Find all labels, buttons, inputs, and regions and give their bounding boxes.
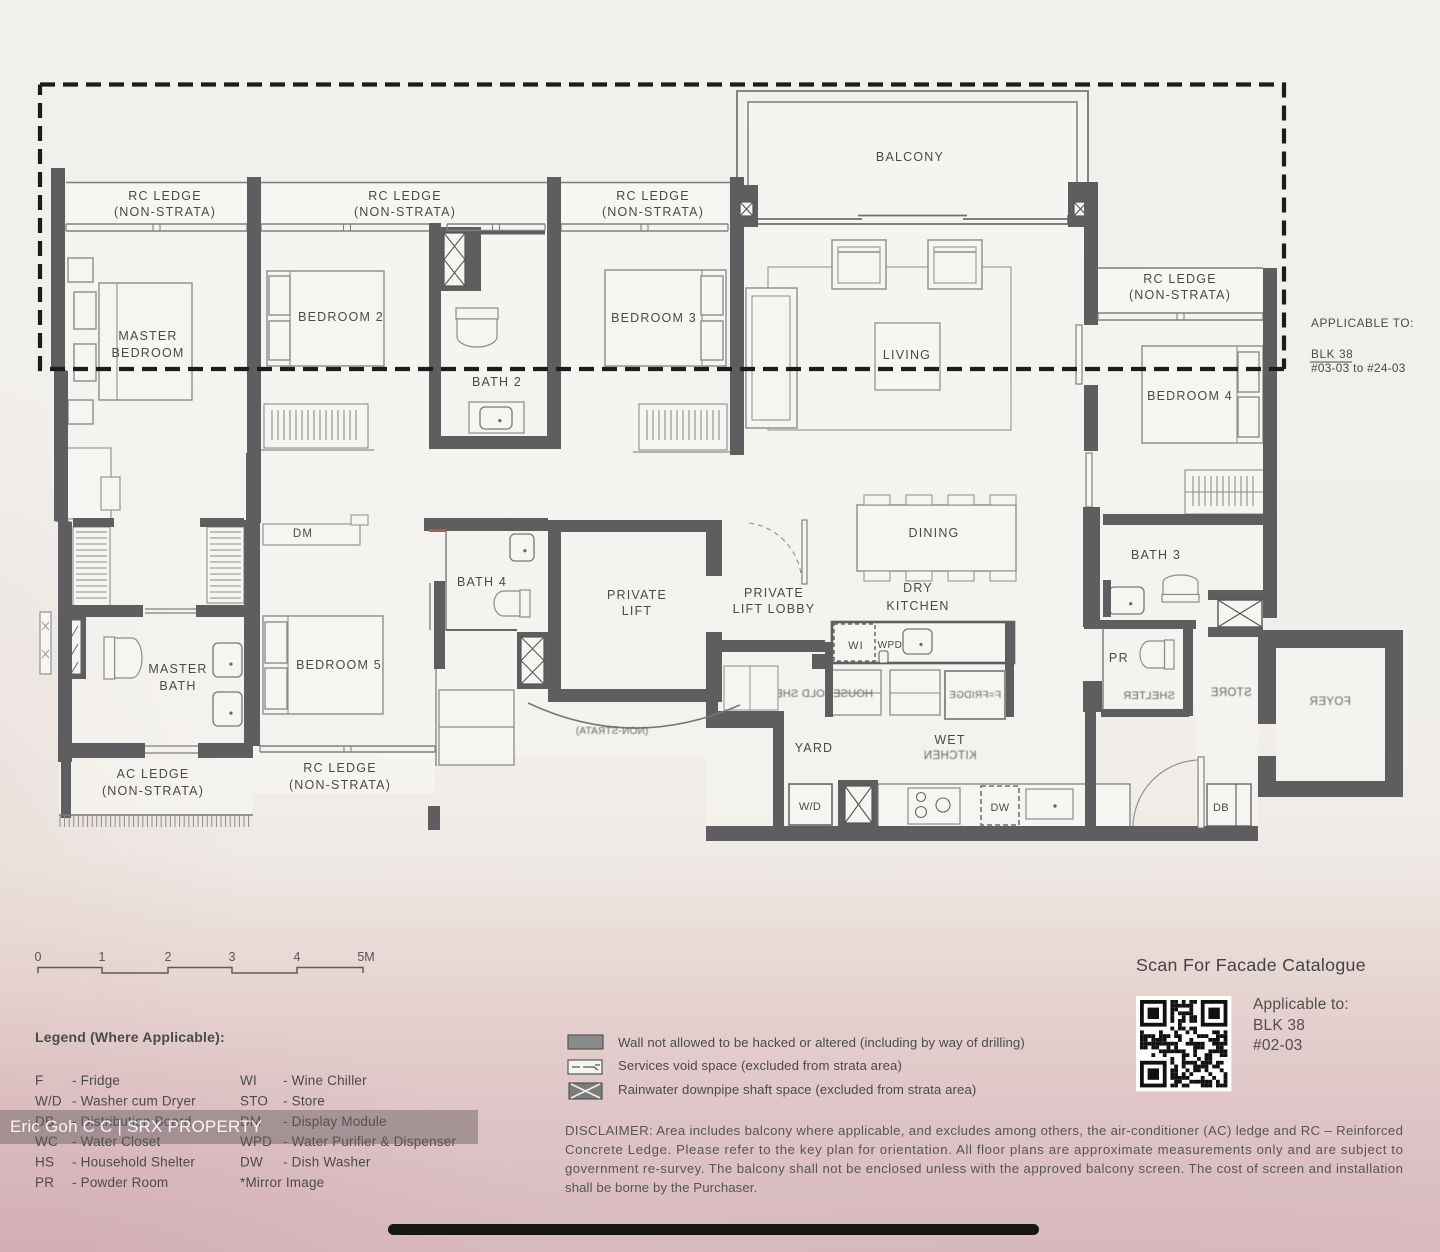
svg-text:Services void space (excluded: Services void space (excluded from strat… [618, 1058, 902, 1073]
svg-text:BALCONY: BALCONY [876, 150, 944, 164]
svg-text:HS: HS [35, 1155, 54, 1170]
svg-text:Legend (Where Applicable):: Legend (Where Applicable): [35, 1029, 225, 1045]
svg-text:LIFT LOBBY: LIFT LOBBY [733, 602, 816, 616]
svg-text:Concrete Ledge. Please refer t: Concrete Ledge. Please refer to the key … [565, 1142, 1403, 1157]
svg-text:WI: WI [240, 1073, 257, 1088]
svg-text:AC LEDGE: AC LEDGE [117, 767, 190, 781]
svg-text:- Washer cum Dryer: - Washer cum Dryer [72, 1093, 196, 1108]
svg-text:PR: PR [1109, 651, 1129, 665]
svg-text:WET: WET [934, 733, 965, 747]
svg-text:3: 3 [229, 950, 236, 964]
svg-text:BLK 38: BLK 38 [1253, 1017, 1305, 1034]
svg-text:(NON-STRATA): (NON-STRATA) [354, 205, 456, 219]
svg-text:RC LEDGE: RC LEDGE [128, 189, 202, 203]
svg-text:(NON-STRATA): (NON-STRATA) [1129, 288, 1231, 302]
svg-text:DW: DW [240, 1155, 263, 1170]
svg-text:(NON-STRATA): (NON-STRATA) [289, 778, 391, 792]
svg-text:FOYER: FOYER [1309, 696, 1351, 708]
svg-text:4: 4 [294, 950, 301, 964]
svg-text:- Store: - Store [283, 1093, 325, 1108]
svg-text:YARD: YARD [795, 741, 834, 755]
svg-text:WI: WI [848, 640, 864, 652]
svg-text:shall be borne by the Purchase: shall be borne by the Purchaser. [565, 1180, 757, 1195]
svg-text:Scan For Facade Catalogue: Scan For Facade Catalogue [1136, 955, 1366, 975]
svg-text:- Wine Chiller: - Wine Chiller [283, 1073, 367, 1088]
svg-text:KITCHEN: KITCHEN [886, 599, 949, 613]
svg-text:DRY: DRY [903, 581, 933, 595]
svg-text:F: F [35, 1073, 43, 1088]
svg-text:F=FRIDGE: F=FRIDGE [949, 690, 1001, 701]
svg-text:(NON-STRATA): (NON-STRATA) [114, 205, 216, 219]
svg-text:(NON-STRATA): (NON-STRATA) [602, 205, 704, 219]
svg-text:APPLICABLE TO:: APPLICABLE TO: [1311, 316, 1414, 330]
svg-text:W/D: W/D [35, 1093, 62, 1108]
svg-text:BATH 4: BATH 4 [457, 575, 507, 589]
svg-text:(NON-STRATA): (NON-STRATA) [576, 726, 649, 737]
svg-text:BATH: BATH [159, 679, 196, 693]
svg-text:1: 1 [99, 950, 106, 964]
svg-text:- Powder Room: - Powder Room [72, 1175, 168, 1190]
svg-text:MASTER: MASTER [118, 329, 177, 343]
svg-text:#02-03: #02-03 [1253, 1037, 1302, 1054]
svg-text:5M: 5M [357, 950, 374, 964]
svg-text:LIFT: LIFT [622, 604, 653, 618]
svg-text:- Dish Washer: - Dish Washer [283, 1155, 371, 1170]
svg-text:- Household Shelter: - Household Shelter [72, 1155, 195, 1170]
svg-text:PR: PR [35, 1175, 54, 1190]
svg-text:MASTER: MASTER [148, 662, 207, 676]
svg-text:SHELTER: SHELTER [1123, 690, 1175, 702]
svg-text:RC LEDGE: RC LEDGE [303, 761, 377, 775]
svg-text:DM: DM [293, 528, 313, 540]
svg-text:DW: DW [991, 802, 1010, 814]
svg-text:- Fridge: - Fridge [72, 1073, 120, 1088]
svg-text:*Mirror Image: *Mirror Image [240, 1175, 324, 1190]
svg-text:STORE: STORE [1210, 687, 1251, 699]
svg-text:W/D: W/D [799, 801, 821, 813]
svg-text:DISCLAIMER: Area includes balc: DISCLAIMER: Area includes balcony where … [565, 1123, 1403, 1138]
svg-text:2: 2 [165, 950, 172, 964]
svg-text:KITCHEN: KITCHEN [923, 750, 976, 762]
svg-text:BEDROOM 4: BEDROOM 4 [1147, 389, 1233, 403]
svg-text:Applicable to:: Applicable to: [1253, 996, 1349, 1013]
svg-text:BEDROOM: BEDROOM [112, 346, 185, 360]
svg-text:RC LEDGE: RC LEDGE [1143, 272, 1217, 286]
svg-text:#03-03 to #24-03: #03-03 to #24-03 [1311, 361, 1406, 375]
svg-text:BLK 38: BLK 38 [1311, 347, 1353, 361]
svg-text:Rainwater downpipe shaft space: Rainwater downpipe shaft space (excluded… [618, 1082, 976, 1097]
svg-text:government re-survey. The balc: government re-survey. The balcony shall … [565, 1161, 1403, 1176]
svg-text:BEDROOM 2: BEDROOM 2 [298, 310, 384, 324]
svg-text:WPD: WPD [878, 640, 903, 651]
svg-text:Wall not allowed to be hacked: Wall not allowed to be hacked or altered… [618, 1035, 1025, 1050]
svg-text:PRIVATE: PRIVATE [744, 586, 804, 600]
svg-text:LIVING: LIVING [883, 348, 931, 362]
svg-text:BEDROOM 3: BEDROOM 3 [611, 311, 697, 325]
svg-text:PRIVATE: PRIVATE [607, 588, 667, 602]
svg-text:DINING: DINING [909, 526, 960, 540]
svg-text:RC LEDGE: RC LEDGE [616, 189, 690, 203]
svg-text:0: 0 [35, 950, 42, 964]
svg-text:BEDROOM 5: BEDROOM 5 [296, 658, 382, 672]
svg-text:RC LEDGE: RC LEDGE [368, 189, 442, 203]
svg-text:STO: STO [240, 1093, 268, 1108]
svg-text:(NON-STRATA): (NON-STRATA) [102, 784, 204, 798]
svg-text:BATH 2: BATH 2 [472, 375, 522, 389]
svg-text:DB: DB [1213, 802, 1229, 814]
svg-text:BATH 3: BATH 3 [1131, 548, 1181, 562]
